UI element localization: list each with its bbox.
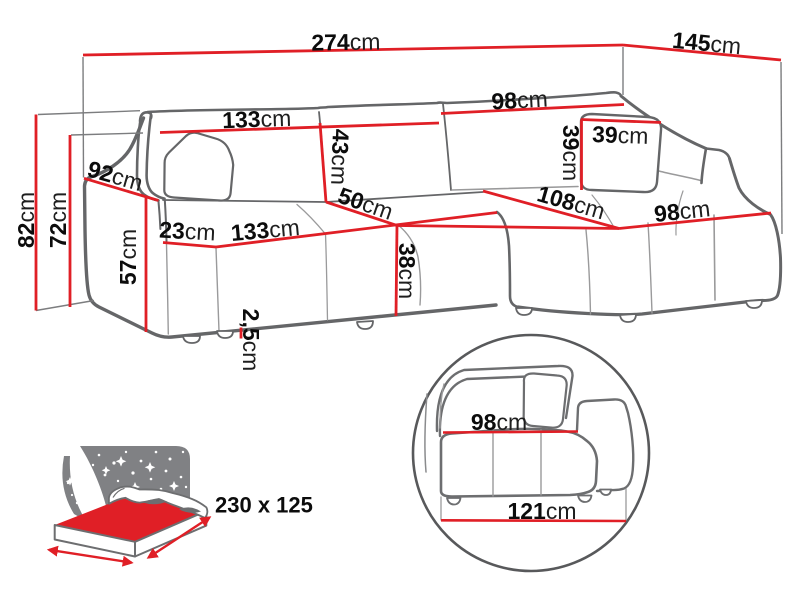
svg-text:23cm: 23cm [159, 217, 217, 246]
svg-text:43cm: 43cm [326, 128, 354, 185]
svg-text:50cm: 50cm [335, 182, 397, 225]
svg-text:2,5cm: 2,5cm [238, 309, 264, 372]
svg-text:121cm: 121cm [507, 498, 576, 524]
svg-text:98cm: 98cm [471, 409, 527, 435]
svg-text:98cm: 98cm [491, 86, 549, 115]
svg-text:57cm: 57cm [115, 229, 141, 285]
svg-text:38cm: 38cm [394, 243, 420, 299]
svg-text:72cm: 72cm [45, 192, 71, 248]
svg-text:133cm: 133cm [230, 214, 301, 246]
svg-text:39cm: 39cm [592, 121, 649, 149]
svg-text:230 x 125: 230 x 125 [215, 493, 313, 518]
svg-text:145cm: 145cm [671, 27, 742, 59]
svg-text:39cm: 39cm [558, 125, 584, 181]
svg-text:98cm: 98cm [653, 195, 712, 227]
svg-text:82cm: 82cm [13, 192, 39, 248]
svg-text:274cm: 274cm [311, 28, 380, 55]
svg-text:133cm: 133cm [222, 105, 292, 133]
